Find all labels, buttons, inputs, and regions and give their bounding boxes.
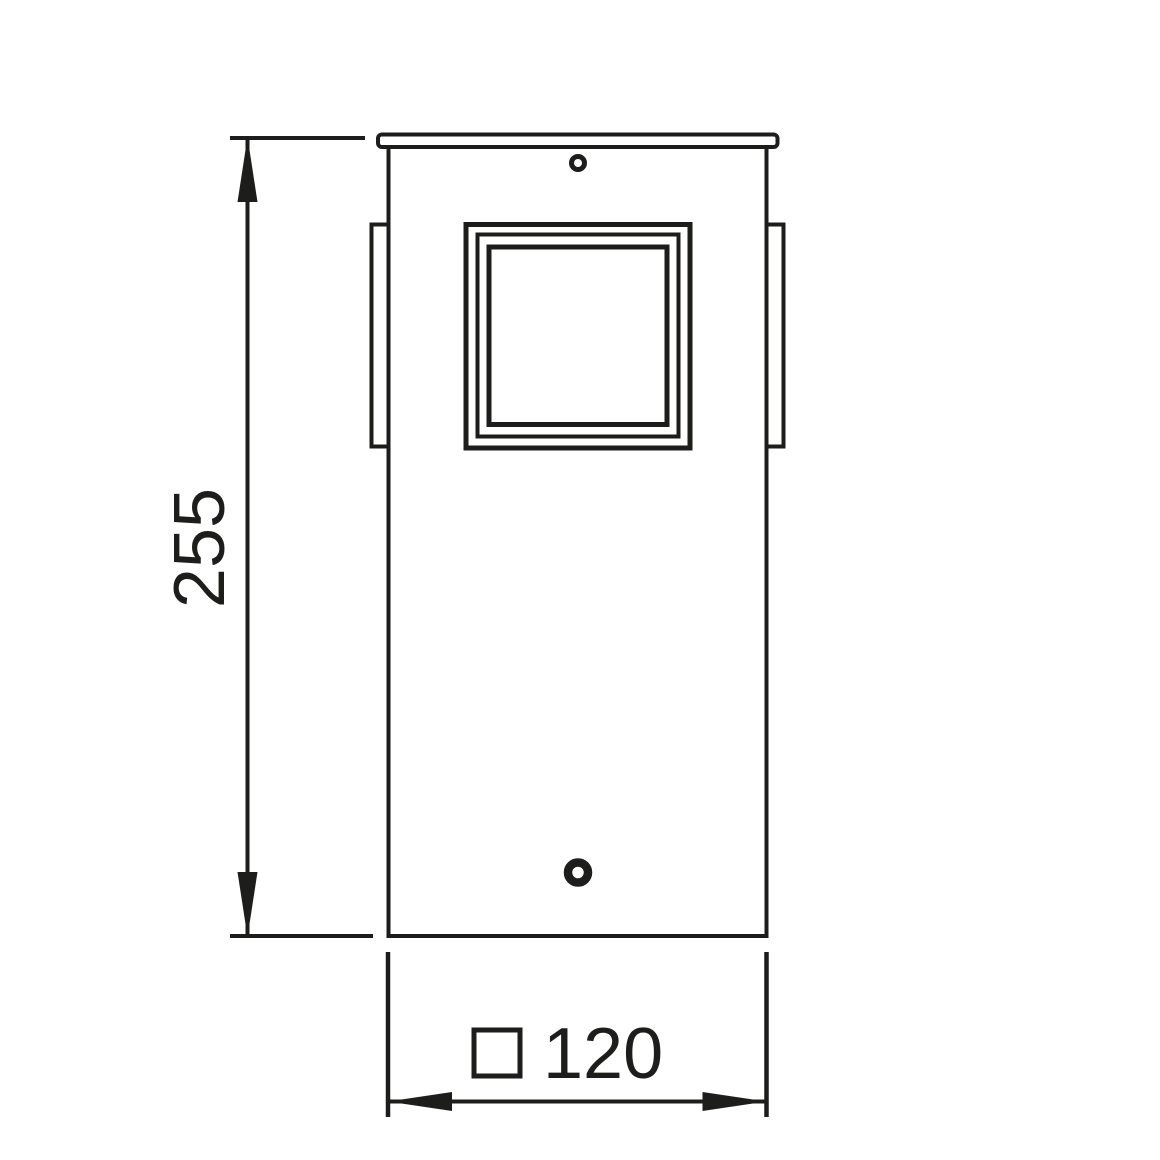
square-profile-symbol-icon [474, 1030, 520, 1076]
technical-drawing: 255 120 [0, 0, 1160, 1160]
fixture-dimension-diagram: 255 120 [0, 0, 1160, 1160]
height-arrow-up-icon [238, 137, 258, 202]
fixture-body [389, 146, 767, 936]
width-arrow-left-icon [388, 1092, 452, 1111]
height-arrow-down-icon [238, 872, 258, 937]
height-dimension: 255 [160, 137, 373, 937]
height-dimension-label: 255 [160, 488, 240, 608]
width-arrow-right-icon [703, 1092, 767, 1111]
fixture [372, 135, 784, 937]
width-dimension-label: 120 [543, 1014, 663, 1094]
width-dimension: 120 [388, 952, 767, 1117]
fixture-top-cap [378, 135, 778, 148]
